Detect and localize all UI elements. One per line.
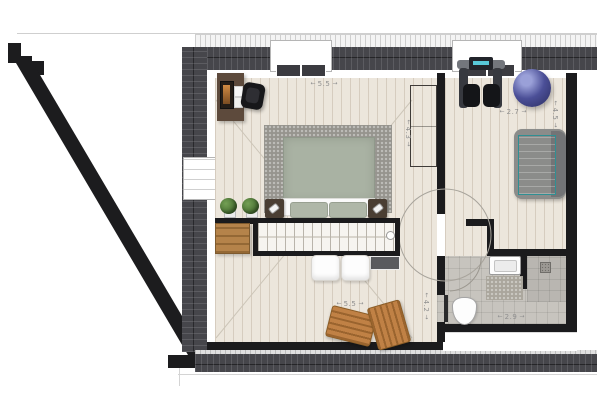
stair-newel-circle	[386, 231, 395, 240]
machine-console	[469, 57, 493, 70]
dim-arrow-right: →	[422, 314, 430, 319]
shower-drain-icon	[540, 262, 551, 273]
office-chair	[240, 81, 266, 110]
floor-cushion-left	[311, 255, 340, 281]
sink-basin	[494, 260, 517, 272]
machine-pad-left	[463, 84, 480, 107]
bathroom-door-leaf	[444, 295, 448, 322]
bed-pillow-left	[290, 202, 328, 218]
plant-icon-right	[242, 198, 259, 214]
monitor-screen	[223, 85, 230, 104]
dimension-gym-width: ←2.7→	[493, 108, 533, 116]
dim-arrow-right: →	[519, 313, 524, 321]
staircase	[253, 218, 400, 256]
bed-pillow-right	[329, 202, 367, 218]
plant-icon-left	[220, 198, 237, 214]
dim-arrow-left: ←	[337, 300, 342, 308]
nightstand-left	[265, 199, 284, 218]
dimension-bedroom-top: ←5.5→	[304, 80, 344, 88]
dim-arrow-right: →	[358, 300, 363, 308]
dim-arrow-right: →	[551, 122, 559, 127]
bed-duvet	[283, 137, 375, 202]
desk-monitor	[220, 81, 234, 109]
lamp-icon	[372, 203, 384, 215]
lounger-mattress	[518, 135, 556, 195]
wardrobe	[410, 85, 437, 167]
dim-arrow-right: →	[332, 80, 337, 88]
dim-arrow-right: →	[521, 108, 526, 116]
dimension-bedroom-bottom-side: ←4.2→	[422, 286, 430, 326]
lounger	[514, 129, 566, 199]
lamp-icon	[268, 203, 280, 215]
machine-pad-right	[483, 84, 500, 107]
dim-arrow-left: ←	[311, 80, 316, 88]
dim-arrow-left: ←	[422, 293, 430, 298]
dimension-bathroom-width: ←2.9→	[491, 313, 531, 321]
floor-cushion-right	[341, 255, 370, 281]
dimension-gym-side: ←4.5→	[551, 94, 559, 134]
nightstand-right	[368, 199, 387, 218]
dim-arrow-left: ←	[404, 120, 412, 125]
stair-doormat	[370, 256, 400, 270]
storage-crate	[215, 223, 250, 254]
dim-arrow-left: ←	[500, 108, 505, 116]
dim-arrow-left: ←	[551, 101, 559, 106]
exercise-machine	[457, 57, 505, 109]
gym-ball	[513, 69, 551, 107]
dim-arrow-left: ←	[498, 313, 503, 321]
floor-plan-canvas: ←5.5→ ←4.3→ ←5.5→ ←4.2→ ←2.7→ ←4.5→ ←2.9…	[0, 0, 600, 400]
dimension-bedroom-side: ←4.3→	[404, 113, 412, 153]
chair-seat-line	[245, 87, 260, 104]
dimension-bedroom-bottom: ←5.5→	[330, 300, 370, 308]
machine-screen	[473, 61, 489, 65]
bath-mat	[486, 276, 523, 300]
sink	[489, 256, 521, 275]
dim-arrow-right: →	[404, 141, 412, 146]
